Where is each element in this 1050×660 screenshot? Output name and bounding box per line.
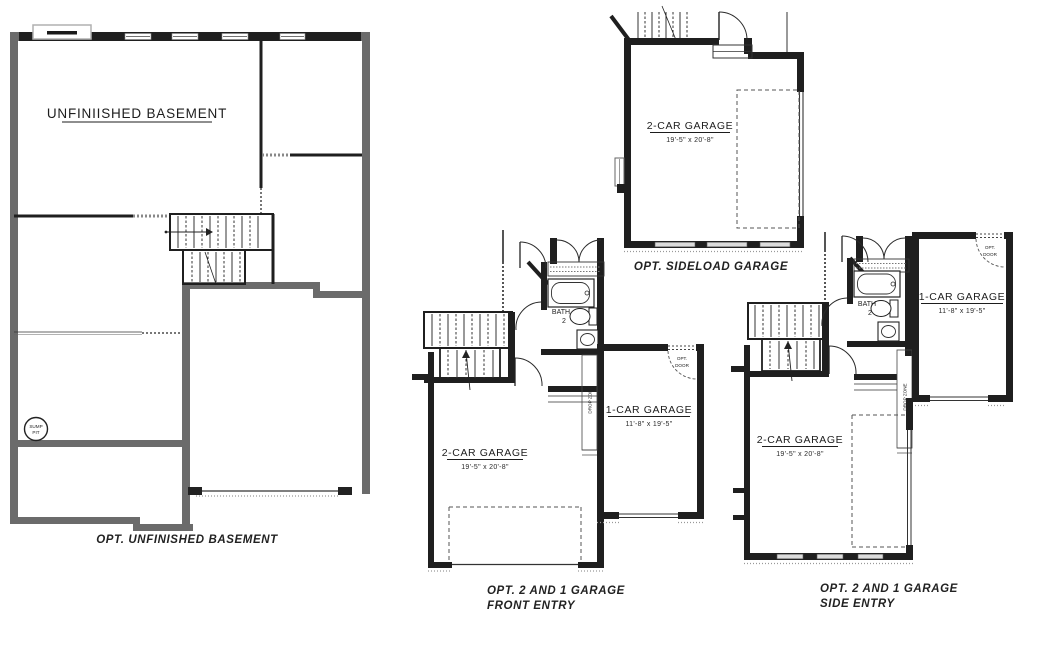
sink	[878, 322, 899, 341]
front-entry-two-car-garage: 2-CAR GARAGE 19'-5" x 20'-8"	[428, 447, 604, 571]
one-car-garage-dims: 11'-8" x 19'-5"	[938, 308, 985, 315]
side-entry-bathroom: BATH 2	[854, 271, 900, 341]
front-entry-bathroom: BATH 2	[548, 279, 598, 349]
side-entry-one-car-garage: OPT. DOOR 1-CAR GARAGE 11'-8" x 19'-5"	[912, 232, 1013, 406]
opt-door-label-line1: OPT.	[985, 245, 995, 250]
front-entry-floorplan: BATH 2 DROP ZONE OPT. DOOR	[412, 230, 704, 612]
sump-pit-label-line2: PIT	[32, 430, 39, 435]
sideload-garage-floorplan: 2-CAR GARAGE 19'-5" x 20'-8" OPT. SIDELO…	[611, 6, 804, 273]
toilet	[570, 308, 597, 325]
sideload-bottom-windows	[655, 242, 790, 247]
stair-direction-arrow	[165, 228, 213, 236]
sideload-caption: OPT. SIDELOAD GARAGE	[634, 261, 788, 273]
one-car-garage-dims: 11'-8" x 19'-5"	[625, 421, 672, 428]
two-car-garage-dims: 19'-5" x 20'-8"	[461, 464, 509, 471]
opt-door-label-line2: DOOR	[983, 252, 997, 257]
side-entry-caption-line1: OPT. 2 AND 1 GARAGE	[820, 583, 958, 595]
basement-caption: OPT. UNFINISHED BASEMENT	[96, 534, 278, 546]
basement-room-label: UNFINIISHED BASEMENT	[47, 106, 227, 121]
bath-label-line2: 2	[868, 310, 872, 317]
sump-pit-label-line1: SUMP	[29, 424, 42, 429]
side-entry-stairs	[748, 303, 828, 381]
drop-zone-label: DROP ZONE	[588, 386, 593, 413]
basement-floorplan: SUMP PIT UNFINIISHED BASEMENT OPT. UNFIN…	[10, 25, 370, 546]
one-car-garage-label: 1-CAR GARAGE	[919, 291, 1006, 303]
bathtub	[548, 279, 594, 307]
side-entry-two-car-garage: 2-CAR GARAGE 19'-5" x 20'-8"	[744, 398, 913, 564]
floorplan-sheet: SUMP PIT UNFINIISHED BASEMENT OPT. UNFIN…	[0, 0, 1050, 660]
sideload-garage-label: 2-CAR GARAGE	[647, 120, 734, 132]
two-car-garage-dims: 19'-5" x 20'-8"	[776, 451, 824, 458]
one-car-garage-label: 1-CAR GARAGE	[606, 404, 693, 416]
optional-door: OPT. DOOR	[668, 344, 696, 379]
basement-garage-opening	[188, 487, 352, 496]
egress-window-well	[33, 25, 91, 39]
front-entry-caption-line2: FRONT ENTRY	[487, 600, 576, 612]
bathtub	[854, 271, 900, 297]
front-entry-drop-zone: DROP ZONE	[582, 355, 597, 455]
basement-stairs	[165, 214, 273, 284]
sump-pit: SUMP PIT	[25, 418, 48, 441]
sideload-cars-zone	[737, 90, 799, 228]
two-car-garage-label: 2-CAR GARAGE	[442, 447, 529, 459]
side-entry-floorplan: BATH 2 DROP ZONE OPT. D	[731, 232, 1013, 610]
sideload-stairs	[638, 6, 687, 40]
side-entry-bottom-windows	[777, 554, 883, 559]
opt-door-label-line2: DOOR	[675, 363, 689, 368]
floorplan-drawing: SUMP PIT UNFINIISHED BASEMENT OPT. UNFIN…	[0, 0, 1050, 660]
front-entry-one-car-garage: OPT. DOOR 1-CAR GARAGE 11'-8" x 19'-5"	[597, 344, 704, 523]
bath-label-line2: 2	[562, 318, 566, 325]
sink	[577, 330, 598, 349]
front-entry-caption-line1: OPT. 2 AND 1 GARAGE	[487, 585, 625, 597]
opt-door-label-line1: OPT.	[677, 356, 687, 361]
two-car-garage-label: 2-CAR GARAGE	[757, 434, 844, 446]
bath-label-line1: BATH	[858, 301, 876, 308]
optional-door: OPT. DOOR	[976, 232, 1004, 267]
side-entry-caption-line2: SIDE ENTRY	[820, 598, 896, 610]
sideload-garage-dims: 19'-5" x 20'-8"	[666, 137, 714, 144]
bath-label-line1: BATH	[552, 309, 570, 316]
